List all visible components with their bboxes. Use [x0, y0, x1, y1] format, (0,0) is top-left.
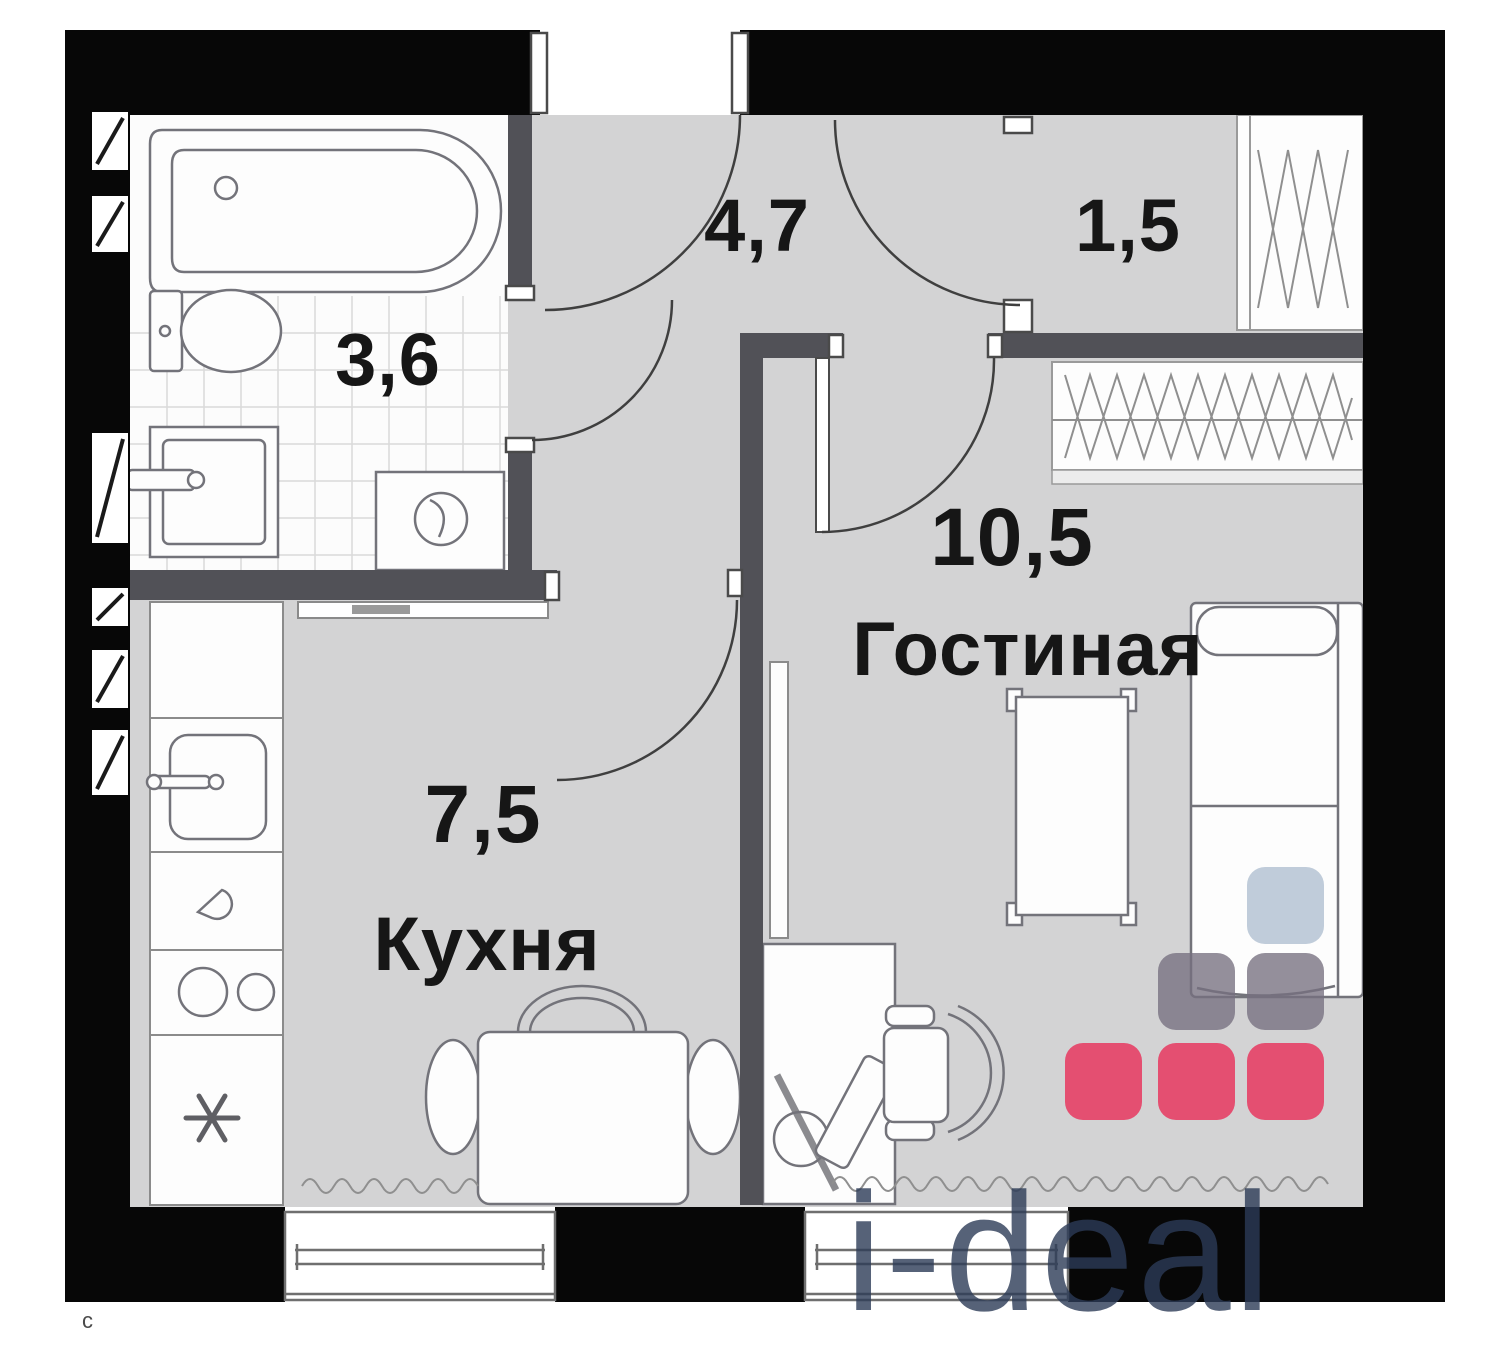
bathtub-icon [150, 130, 501, 292]
bathroom-sink-icon [128, 427, 278, 557]
living-area-label: 10,5 [930, 497, 1094, 579]
hallway-area-label: 4,7 [704, 189, 810, 263]
logo-square-pink-icon [1158, 1043, 1235, 1120]
tv-console-icon [770, 662, 788, 938]
closet-area-label: 1,5 [1075, 189, 1181, 263]
kitchen-area-label: 7,5 [425, 774, 542, 856]
living-name-label: Гостиная [852, 612, 1203, 688]
logo-square-blue-icon [1247, 867, 1324, 944]
logo-square-pink-icon [1065, 1043, 1142, 1120]
dining-table-icon [478, 1032, 688, 1204]
washing-machine-icon [376, 472, 504, 570]
floorplan-canvas: 3,6 4,7 1,5 10,5 Гостиная 7,5 Кухня i-de… [0, 0, 1500, 1350]
entrance-door-posts [531, 33, 748, 113]
living-wardrobe-icon [1052, 362, 1363, 484]
logo-square-gray-icon [1247, 953, 1324, 1030]
logo-square-gray-icon [1158, 953, 1235, 1030]
toilet-icon [150, 290, 281, 372]
closet-wardrobe-icon [1237, 115, 1363, 330]
bathroom-area-label: 3,6 [335, 323, 441, 397]
kitchen-window [285, 1212, 555, 1300]
kitchen-name-label: Кухня [373, 907, 600, 983]
kitchen-shelf [298, 602, 548, 618]
logo-square-pink-icon [1247, 1043, 1324, 1120]
living-door-leaf [816, 358, 829, 532]
watermark-logo-text: i-deal [845, 1168, 1274, 1336]
coffee-table-icon [1007, 689, 1136, 925]
vent-shaft-icons [92, 112, 128, 795]
corner-stray-char: с [82, 1308, 93, 1334]
